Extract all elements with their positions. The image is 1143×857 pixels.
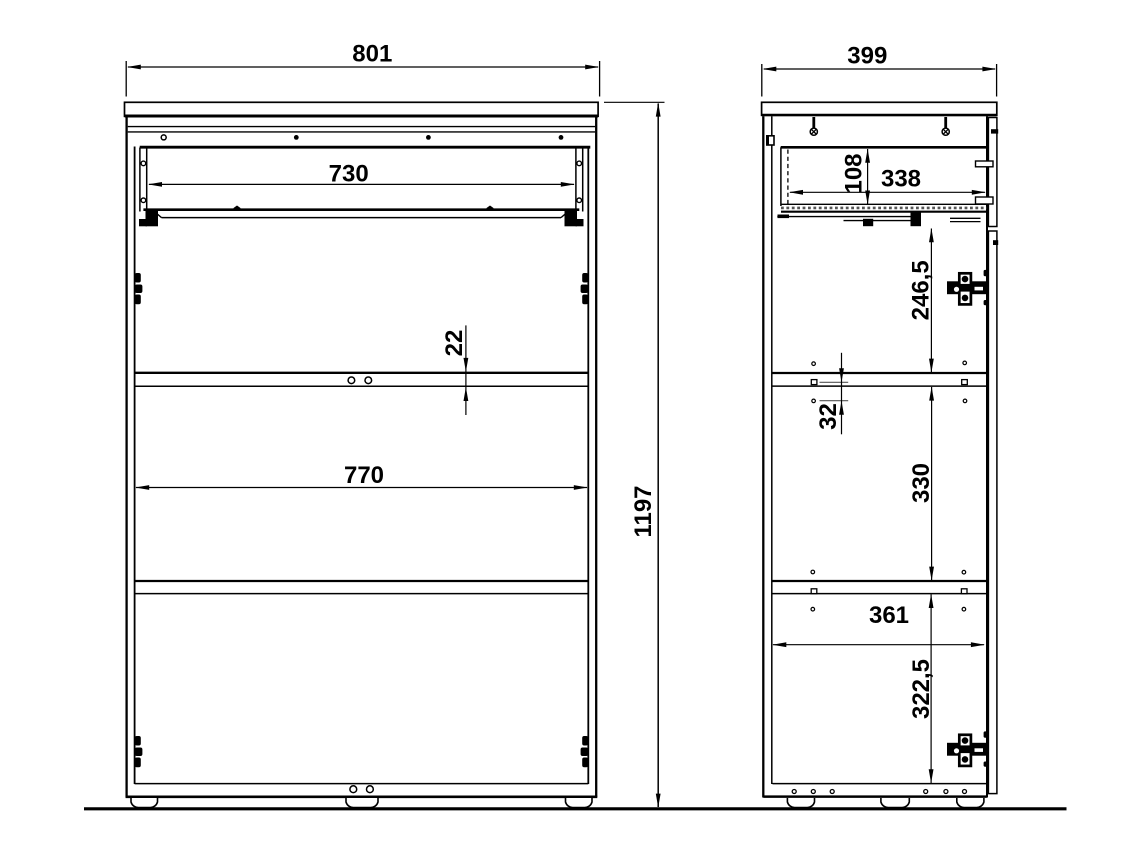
svg-text:730: 730 [329,161,369,188]
svg-text:322,5: 322,5 [908,659,935,719]
svg-text:1197: 1197 [630,485,657,537]
svg-text:32: 32 [815,403,842,430]
svg-text:108: 108 [841,153,868,193]
svg-text:22: 22 [441,330,468,357]
svg-text:330: 330 [908,463,935,503]
svg-text:801: 801 [352,41,392,68]
svg-text:399: 399 [847,43,887,70]
svg-text:770: 770 [344,462,384,489]
svg-text:361: 361 [869,602,909,629]
svg-text:338: 338 [881,166,921,193]
svg-text:246,5: 246,5 [908,260,935,320]
